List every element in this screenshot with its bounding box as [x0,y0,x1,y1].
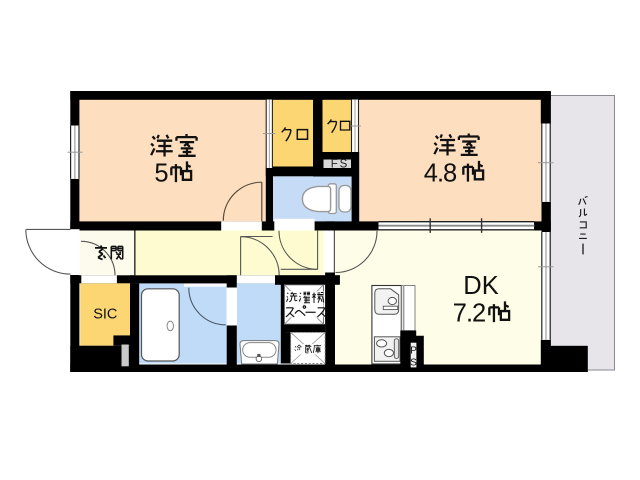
svg-text:4.8: 4.8 [424,160,457,188]
svg-text:P: P [410,346,417,357]
svg-text:5: 5 [154,160,168,188]
svg-text:SIC: SIC [93,306,117,322]
svg-text:FS: FS [331,159,348,171]
svg-text:S: S [410,358,417,369]
svg-text:7.2: 7.2 [453,300,485,328]
svg-text:DK: DK [463,272,498,300]
